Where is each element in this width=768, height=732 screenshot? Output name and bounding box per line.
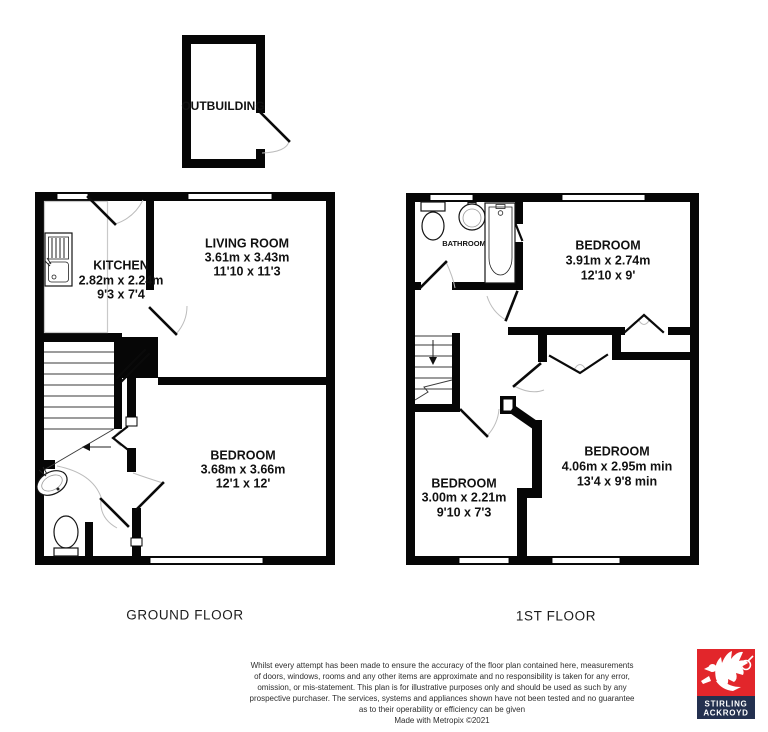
door-leaf <box>506 292 517 320</box>
disclaimer-line: of doors, windows, rooms and any other i… <box>254 672 630 681</box>
window <box>562 195 645 201</box>
wall <box>612 352 690 360</box>
bedroom-left-dim-metric: 3.00m x 2.21m <box>422 490 507 504</box>
staircase-ground <box>44 352 114 470</box>
bathroom-label: BATHROOM <box>442 239 486 248</box>
wc-toilet <box>54 516 78 556</box>
logo-text-line2: ACKROYD <box>703 709 748 718</box>
living-room-label: LIVING ROOM <box>205 236 289 250</box>
door-swing-arc <box>133 473 163 483</box>
door-leaf <box>101 499 128 526</box>
wall <box>508 327 625 335</box>
bedroom-right-label: BEDROOM <box>584 444 649 458</box>
disclaimer-line: as to their operability or efficiency ca… <box>359 705 525 714</box>
window <box>150 558 263 564</box>
door-swing-arc <box>262 141 289 153</box>
disclaimer-line: omission, or mis-statement. This plan is… <box>257 683 626 692</box>
ground-bedroom-label: BEDROOM <box>210 448 275 462</box>
wall <box>517 493 527 556</box>
wall <box>182 35 265 44</box>
door-frame-inner <box>504 400 513 411</box>
kitchen-sink-unit <box>45 233 72 286</box>
wall <box>406 193 415 565</box>
wall <box>326 192 335 565</box>
window <box>459 558 509 564</box>
labels: OUTBUILDING KITCHEN 2.82m x 2.24m 9'3 x … <box>79 99 673 623</box>
door-leaf <box>150 308 176 334</box>
stair-break-line <box>415 380 452 400</box>
disclaimer: Whilst every attempt has been made to en… <box>250 661 636 725</box>
ground-floor <box>33 192 335 565</box>
door-leaf <box>261 113 289 141</box>
kitchen-dim-imperial: 9'3 x 7'4 <box>97 287 145 301</box>
door-swing-arc <box>487 296 506 320</box>
drain-icon <box>57 488 60 491</box>
metropix-credit: Made with Metropix ©2021 <box>394 716 490 725</box>
window <box>57 194 88 200</box>
door-frame <box>131 538 142 546</box>
door-swing-arc <box>446 262 455 288</box>
bedroom-top-dim-metric: 3.91m x 2.74m <box>566 253 651 267</box>
window <box>188 194 272 200</box>
living-room-dim-imperial: 11'10 x 11'3 <box>213 264 280 278</box>
staircase-first <box>415 336 452 400</box>
wall <box>127 378 136 417</box>
door-leaf <box>516 225 522 240</box>
agency-logo: STIRLING ACKROYD <box>697 649 755 719</box>
door-swing-arc <box>115 200 143 224</box>
ground-floor-caption: GROUND FLOOR <box>126 608 243 623</box>
disclaimer-line: Whilst every attempt has been made to en… <box>251 661 634 670</box>
direction-arrowhead <box>429 357 437 365</box>
floorplan-canvas: OUTBUILDING KITCHEN 2.82m x 2.24m 9'3 x … <box>0 0 768 732</box>
window <box>430 195 473 201</box>
wall <box>132 508 141 556</box>
bedroom-top-dim-imperial: 12'10 x 9' <box>581 268 636 282</box>
bedroom-left-label: BEDROOM <box>431 476 496 490</box>
door-swing-arc <box>487 409 499 436</box>
bathroom-toilet <box>421 202 445 240</box>
door-leaf <box>136 483 163 510</box>
bedroom-right-dim-metric: 4.06m x 2.95m min <box>562 459 672 473</box>
logo-text-line1: STIRLING <box>705 700 748 709</box>
kitchen-dim-metric: 2.82m x 2.24m <box>79 273 164 287</box>
door-leaf <box>461 410 487 436</box>
wall <box>114 341 122 429</box>
ground-bedroom-dim-metric: 3.68m x 3.66m <box>201 462 286 476</box>
wall <box>35 192 44 565</box>
wall <box>158 377 326 385</box>
stair-diagonal <box>44 429 114 470</box>
wall <box>44 333 122 342</box>
wall <box>182 159 265 168</box>
angled-wall <box>512 409 535 425</box>
first-floor-caption: 1ST FLOOR <box>516 609 596 624</box>
bedroom-left-dim-imperial: 9'10 x 7'3 <box>437 505 492 519</box>
door-leaf <box>514 364 540 386</box>
wall <box>127 448 136 472</box>
bathroom-basin <box>459 203 485 231</box>
window <box>552 558 620 564</box>
bifold-door <box>550 355 607 373</box>
bathtub <box>485 203 515 283</box>
wall <box>690 193 699 565</box>
wall <box>406 404 460 412</box>
door-frame <box>126 417 137 426</box>
door-swing-arc <box>176 306 187 334</box>
bifold-door <box>625 315 663 332</box>
door-swing-arc <box>514 386 544 392</box>
disclaimer-line: prospective purchaser. The services, sys… <box>250 694 636 703</box>
outbuilding-label: OUTBUILDING <box>181 99 264 113</box>
wall <box>532 420 542 490</box>
living-room-dim-metric: 3.61m x 3.43m <box>205 250 290 264</box>
sink-unit-outline <box>45 233 72 286</box>
wall <box>256 149 265 168</box>
bedroom-top-label: BEDROOM <box>575 238 640 252</box>
wall <box>85 522 93 556</box>
wall <box>668 327 690 335</box>
direction-arrowhead <box>82 443 90 451</box>
ground-bedroom-dim-imperial: 12'1 x 12' <box>216 476 271 490</box>
door-leaf <box>420 262 446 288</box>
wall <box>406 282 421 290</box>
bedroom-right-dim-imperial: 13'4 x 9'8 min <box>577 474 657 488</box>
chimney-breast <box>122 337 158 378</box>
wall <box>538 327 547 362</box>
kitchen-label: KITCHEN <box>93 258 149 272</box>
wall <box>452 333 460 404</box>
wall <box>515 201 523 224</box>
